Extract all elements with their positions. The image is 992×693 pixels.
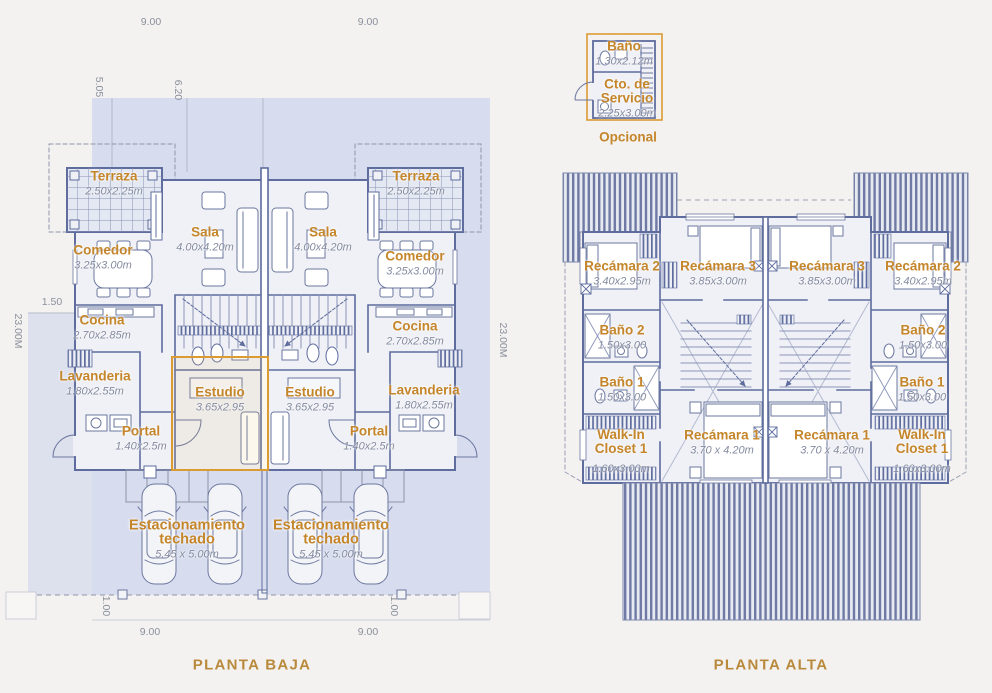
dim-5-05: 5.05 — [93, 77, 105, 97]
room-name: Baño — [595, 40, 652, 54]
room-dims: 1.80x2.55m — [388, 399, 459, 413]
dim-bottom-right: 9.00 — [358, 626, 378, 638]
room-label-bano1-left: Baño 1 1.50x3.00 — [598, 376, 646, 405]
room-name: Baño 2 — [899, 324, 947, 338]
dim-side-left: 23.00M — [12, 313, 24, 348]
room-label-recamara1-right: Recámara 1 3.70 x 4.20m — [794, 429, 870, 458]
room-dims: 1.40x2.5m — [115, 440, 166, 454]
room-label-sala-left: Sala 4.00x4.20m — [176, 226, 233, 255]
room-name: Comedor — [385, 250, 444, 264]
room-name: Estacionamiento — [129, 519, 245, 533]
room-name: Cocina — [386, 320, 443, 334]
room-label-estacionamiento-left: Estacionamiento techado 5.45 x 5.00m — [129, 519, 245, 562]
room-label-cocina-right: Cocina 2.70x2.85m — [386, 320, 443, 349]
room-label-recamara2-left: Recámara 2 3.40x2.95m — [584, 260, 660, 289]
room-dims: 1.40x2.5m — [343, 440, 394, 454]
room-dims: 1.60x3.00m — [592, 462, 649, 476]
room-name-line2: Closet 1 — [592, 442, 649, 456]
plan-linework — [0, 0, 992, 693]
room-dims: 2.50x2.25m — [85, 185, 142, 199]
room-name: Terraza — [85, 170, 142, 184]
room-label-walkin-right: Walk-In Closet 1 1.60x3.00m — [893, 428, 950, 476]
planta-baja-title: PLANTA BAJA — [193, 657, 311, 674]
room-dims: 1.50x3.00 — [598, 391, 646, 405]
room-dims: 3.25x3.00m — [73, 259, 132, 273]
room-name: Lavanderia — [388, 384, 459, 398]
room-dims: 4.00x4.20m — [176, 241, 233, 255]
room-name-line2: Closet 1 — [893, 442, 950, 456]
room-name: Recámara 3 — [789, 260, 865, 274]
room-name: Baño 1 — [598, 376, 646, 390]
room-name: Comedor — [73, 244, 132, 258]
room-dims: 1.50x3.00 — [898, 391, 946, 405]
room-dims: 1.80x2.55m — [59, 385, 130, 399]
room-label-cto-servicio: Cto. de Servicio 2.25x3.00m — [598, 78, 655, 121]
dim-offset-left: 1.00 — [100, 596, 112, 616]
room-name: Lavanderia — [59, 370, 130, 384]
room-label-portal-right: Portal 1.40x2.5m — [343, 425, 394, 454]
room-label-recamara2-right: Recámara 2 3.40x2.95m — [885, 260, 961, 289]
room-label-sala-right: Sala 4.00x4.20m — [294, 226, 351, 255]
room-dims: 2.70x2.85m — [386, 335, 443, 349]
room-dims: 1.30x2.12m — [595, 55, 652, 69]
dim-setback: 1.50 — [42, 296, 62, 308]
room-label-lavanderia-left: Lavanderia 1.80x2.55m — [59, 370, 130, 399]
room-label-terraza-right: Terraza 2.50x2.25m — [387, 170, 444, 199]
room-dims: 3.70 x 4.20m — [794, 444, 870, 458]
room-dims: 3.65x2.95 — [195, 401, 245, 415]
dim-offset-right: 1.00 — [388, 596, 400, 616]
room-dims: 1.50x3.00 — [598, 339, 646, 353]
room-name: Baño 2 — [598, 324, 646, 338]
room-name: Portal — [115, 425, 166, 439]
room-dims: 3.25x3.00m — [385, 265, 444, 279]
dim-bottom-left: 9.00 — [140, 626, 160, 638]
room-label-bano1-right: Baño 1 1.50x3.00 — [898, 376, 946, 405]
room-dims: 2.50x2.25m — [387, 185, 444, 199]
room-dims: 3.85x3.00m — [680, 275, 756, 289]
room-label-portal-left: Portal 1.40x2.5m — [115, 425, 166, 454]
room-name-line2: techado — [273, 533, 389, 547]
room-label-comedor-left: Comedor 3.25x3.00m — [73, 244, 132, 273]
room-dims: 5.45 x 5.00m — [129, 548, 245, 562]
room-label-comedor-right: Comedor 3.25x3.00m — [385, 250, 444, 279]
room-dims: 2.25x3.00m — [598, 107, 655, 121]
room-dims: 1.60x3.00m — [893, 462, 950, 476]
dim-side-right: 23.00M — [497, 322, 509, 357]
room-name: Cocina — [73, 314, 130, 328]
room-name: Walk-In — [893, 428, 950, 442]
room-dims: 4.00x4.20m — [294, 241, 351, 255]
room-name: Recámara 2 — [584, 260, 660, 274]
room-dims: 3.65x2.95 — [285, 401, 335, 415]
room-name: Terraza — [387, 170, 444, 184]
room-name-line2: techado — [129, 533, 245, 547]
room-name-line2: Servicio — [598, 92, 655, 106]
room-dims: 3.40x2.95m — [584, 275, 660, 289]
dim-6-20: 6.20 — [172, 80, 184, 100]
room-label-lavanderia-right: Lavanderia 1.80x2.55m — [388, 384, 459, 413]
floorplan-page: { "plan": { "planta_baja": { "title": "P… — [0, 0, 992, 693]
room-name: Recámara 3 — [680, 260, 756, 274]
room-name: Estudio — [285, 386, 335, 400]
dim-top-left: 9.00 — [141, 16, 161, 28]
room-label-recamara1-left: Recámara 1 3.70 x 4.20m — [684, 429, 760, 458]
room-name: Walk-In — [592, 428, 649, 442]
room-name: Recámara 1 — [684, 429, 760, 443]
room-name: Sala — [176, 226, 233, 240]
room-label-estacionamiento-right: Estacionamiento techado 5.45 x 5.00m — [273, 519, 389, 562]
room-label-terraza-left: Terraza 2.50x2.25m — [85, 170, 142, 199]
room-dims: 3.40x2.95m — [885, 275, 961, 289]
room-name: Sala — [294, 226, 351, 240]
room-label-bano2-left: Baño 2 1.50x3.00 — [598, 324, 646, 353]
room-label-estudio-left: Estudio 3.65x2.95 — [195, 386, 245, 415]
room-label-recamara3-right: Recámara 3 3.85x3.00m — [789, 260, 865, 289]
opcional-caption: Opcional — [599, 130, 657, 145]
room-name: Baño 1 — [898, 376, 946, 390]
room-label-recamara3-left: Recámara 3 3.85x3.00m — [680, 260, 756, 289]
room-dims: 5.45 x 5.00m — [273, 548, 389, 562]
room-label-bano2-right: Baño 2 1.50x3.00 — [899, 324, 947, 353]
room-name: Estacionamiento — [273, 519, 389, 533]
room-dims: 2.70x2.85m — [73, 329, 130, 343]
room-dims: 3.85x3.00m — [789, 275, 865, 289]
room-name: Cto. de — [598, 78, 655, 92]
room-name: Estudio — [195, 386, 245, 400]
room-name: Portal — [343, 425, 394, 439]
planta-alta-title: PLANTA ALTA — [714, 657, 829, 674]
room-name: Recámara 2 — [885, 260, 961, 274]
dim-top-right: 9.00 — [358, 16, 378, 28]
room-dims: 1.50x3.00 — [899, 339, 947, 353]
room-dims: 3.70 x 4.20m — [684, 444, 760, 458]
room-label-cocina-left: Cocina 2.70x2.85m — [73, 314, 130, 343]
room-label-bano-opcional: Baño 1.30x2.12m — [595, 40, 652, 69]
room-name: Recámara 1 — [794, 429, 870, 443]
room-label-estudio-right: Estudio 3.65x2.95 — [285, 386, 335, 415]
room-label-walkin-left: Walk-In Closet 1 1.60x3.00m — [592, 428, 649, 476]
